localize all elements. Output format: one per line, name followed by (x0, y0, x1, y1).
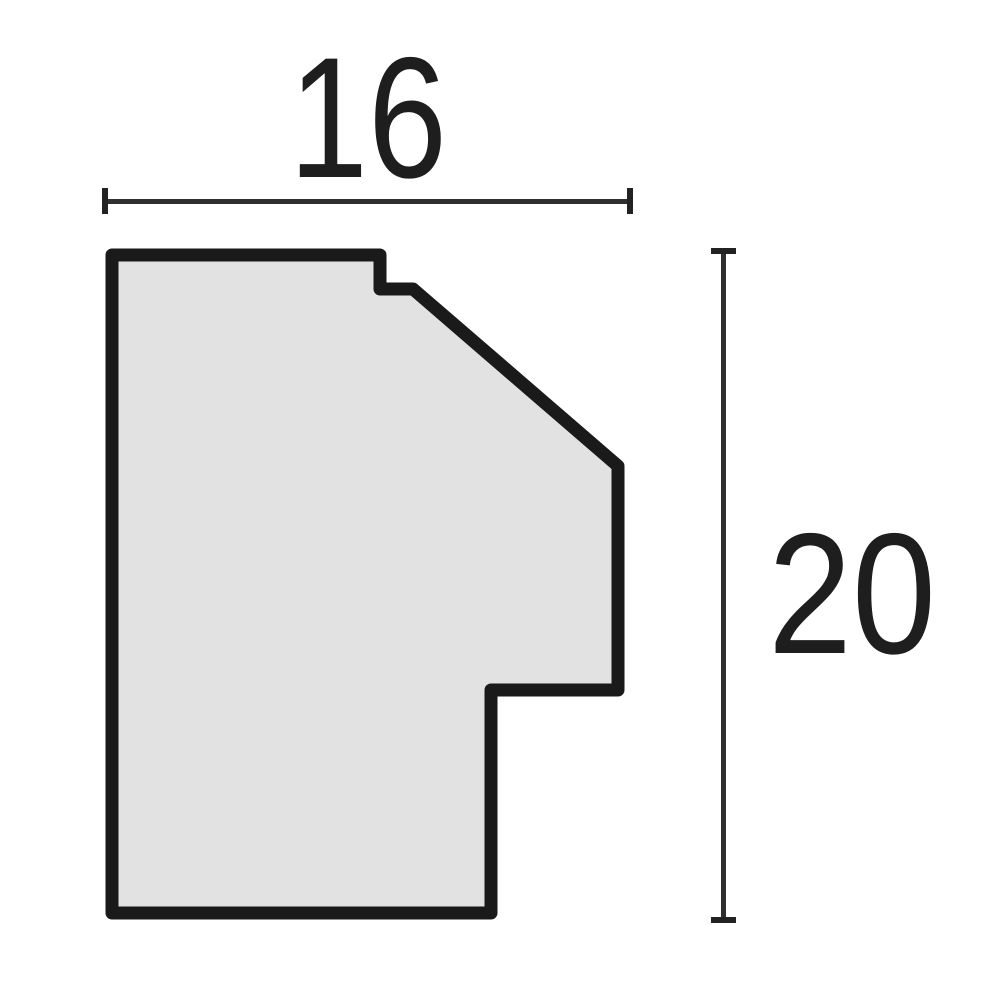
width-dimension-label: 16 (289, 22, 447, 214)
diagram-canvas: 16 20 (0, 0, 1000, 1000)
moulding-profile-shape (112, 255, 618, 913)
profile-diagram-svg: 16 20 (0, 0, 1000, 1000)
height-dimension-label: 20 (768, 498, 936, 690)
height-dimension: 20 (711, 251, 936, 920)
width-dimension: 16 (105, 22, 630, 214)
